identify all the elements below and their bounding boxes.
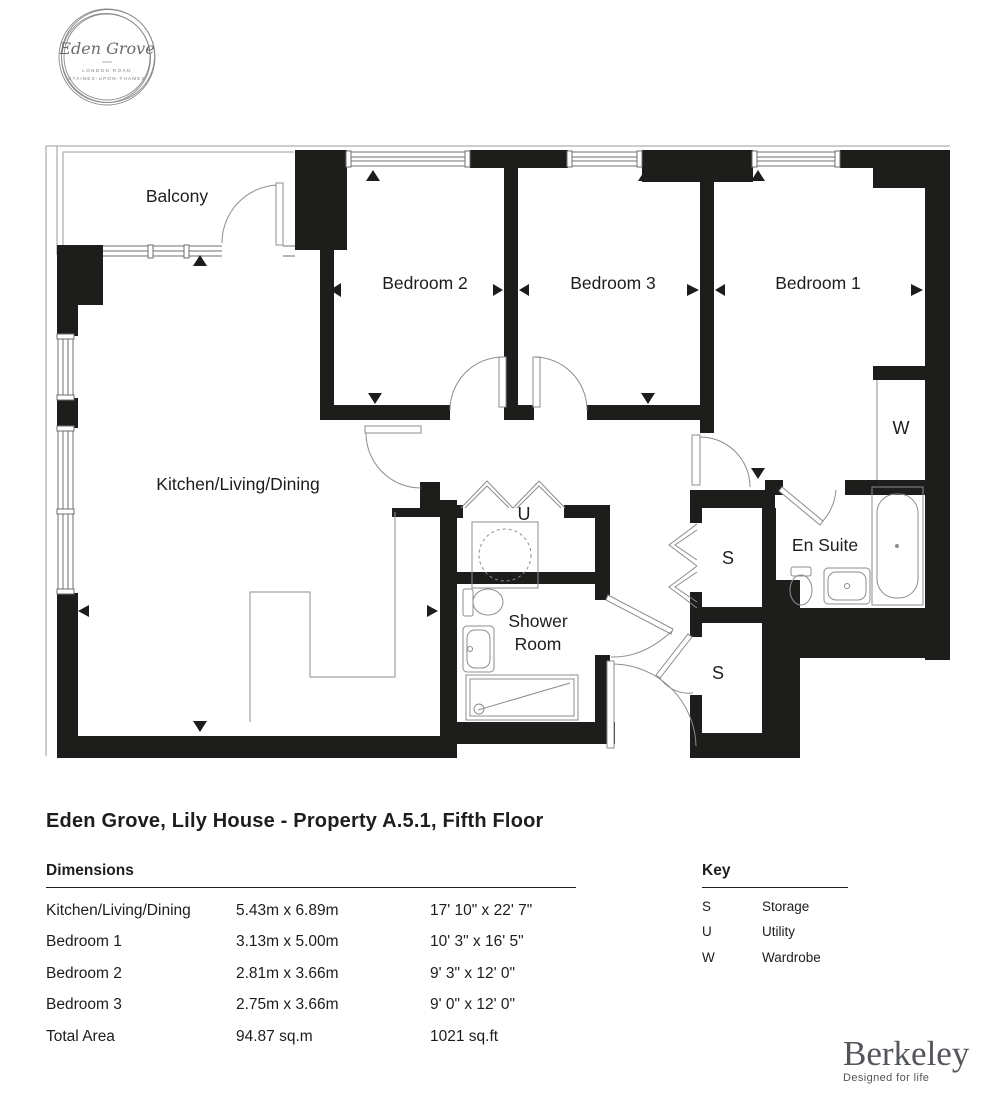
logo-address-1: LONDON ROAD [82,68,132,73]
table-row: Bedroom 1 3.13m x 5.00m 10' 3" x 16' 5" [46,933,576,951]
entrance-door-leaf [607,661,614,748]
room-name: Bedroom 2 [46,965,236,983]
shower-room-door-leaf [606,595,673,634]
shower-room-door-arc [611,631,672,657]
bedroom2-door-arc [450,357,503,410]
metric-size: 5.43m x 6.89m [236,902,430,920]
exterior-outline [46,146,950,756]
bedroom2-door-leaf [499,357,506,407]
imperial-size: 10' 3" x 16' 5" [430,933,576,951]
shower-tray [466,675,578,720]
kitchen-door-leaf [365,426,421,433]
shower-room-label-line2: Room [515,634,562,654]
balcony-door-arc [222,185,276,243]
key-symbol: W [702,950,762,965]
metric-size: 94.87 sq.m [236,1028,430,1046]
dimensions-table: Dimensions Kitchen/Living/Dining 5.43m x… [46,862,576,1046]
walls [57,150,950,758]
logo-address-2: STAINES-UPON-THAMES [68,76,146,81]
shower-room-toilet [463,589,503,616]
storage-lower-door-arc [659,677,693,693]
kitchen-door-arc [366,433,421,488]
balcony-label: Balcony [146,186,209,206]
bedroom1-door-leaf [692,435,700,485]
bedroom3-label: Bedroom 3 [570,273,656,293]
imperial-size: 9' 3" x 12' 0" [430,965,576,983]
storage-lower-label: S [712,663,724,683]
balcony-door-leaf [276,183,283,245]
page-title: Eden Grove, Lily House - Property A.5.1,… [46,810,544,833]
shower-room-sink [463,626,494,672]
room-name: Bedroom 3 [46,996,236,1014]
metric-size: 3.13m x 5.00m [236,933,430,951]
imperial-size: 1021 sq.ft [430,1028,576,1046]
ensuite-door-leaf [779,487,823,525]
shower-room-label-line1: Shower [508,611,568,631]
bedroom1-door-arc [700,437,750,487]
storage-lower-door-leaf [656,634,692,678]
bedroom3-door-leaf [533,357,540,407]
imperial-size: 17' 10" x 22' 7" [430,902,576,920]
key-row: S Storage [702,899,848,914]
ensuite-label: En Suite [792,535,858,555]
key-label: Utility [762,924,848,939]
bedroom3-door-arc [534,357,587,410]
table-row: Kitchen/Living/Dining 5.43m x 6.89m 17' … [46,902,576,920]
key-heading: Key [702,862,848,888]
doors [222,183,836,748]
utility-bifold-doors [461,481,565,508]
key-table: Key S Storage U Utility W Wardrobe [702,862,848,965]
wardrobe-label: W [893,418,910,438]
ensuite-sink [824,568,870,604]
logo-name: Eden Grove [58,39,154,58]
key-label: Storage [762,899,848,914]
bedroom1-label: Bedroom 1 [775,273,861,293]
berkeley-tagline: Designed for life [843,1072,969,1084]
key-symbol: S [702,899,762,914]
room-name: Total Area [46,1028,236,1046]
floor-plan: Balcony Bedroom 2 Bedroom 3 Bedroom 1 Ki… [0,140,1000,760]
entrance-door-arc [614,664,696,746]
bathtub [872,487,923,605]
berkeley-logo: Berkeley Designed for life [843,1036,969,1084]
kitchen-counter [250,512,395,722]
table-row: Bedroom 2 2.81m x 3.66m 9' 3" x 12' 0" [46,965,576,983]
bedroom2-label: Bedroom 2 [382,273,468,293]
key-row: U Utility [702,924,848,939]
dimensions-heading: Dimensions [46,862,576,888]
metric-size: 2.75m x 3.66m [236,996,430,1014]
room-name: Bedroom 1 [46,933,236,951]
imperial-size: 9' 0" x 12' 0" [430,996,576,1014]
key-label: Wardrobe [762,950,848,965]
table-row: Total Area 94.87 sq.m 1021 sq.ft [46,1028,576,1046]
key-symbol: U [702,924,762,939]
storage-upper-label: S [722,548,734,568]
ensuite-door-arc [822,490,836,522]
kitchen-label: Kitchen/Living/Dining [156,474,319,494]
room-name: Kitchen/Living/Dining [46,902,236,920]
metric-size: 2.81m x 3.66m [236,965,430,983]
eden-grove-logo: Eden Grove LONDON ROAD STAINES-UPON-THAM… [50,2,165,114]
utility-label: U [518,504,531,524]
berkeley-wordmark: Berkeley [843,1036,969,1072]
table-row: Bedroom 3 2.75m x 3.66m 9' 0" x 12' 0" [46,996,576,1014]
key-row: W Wardrobe [702,950,848,965]
